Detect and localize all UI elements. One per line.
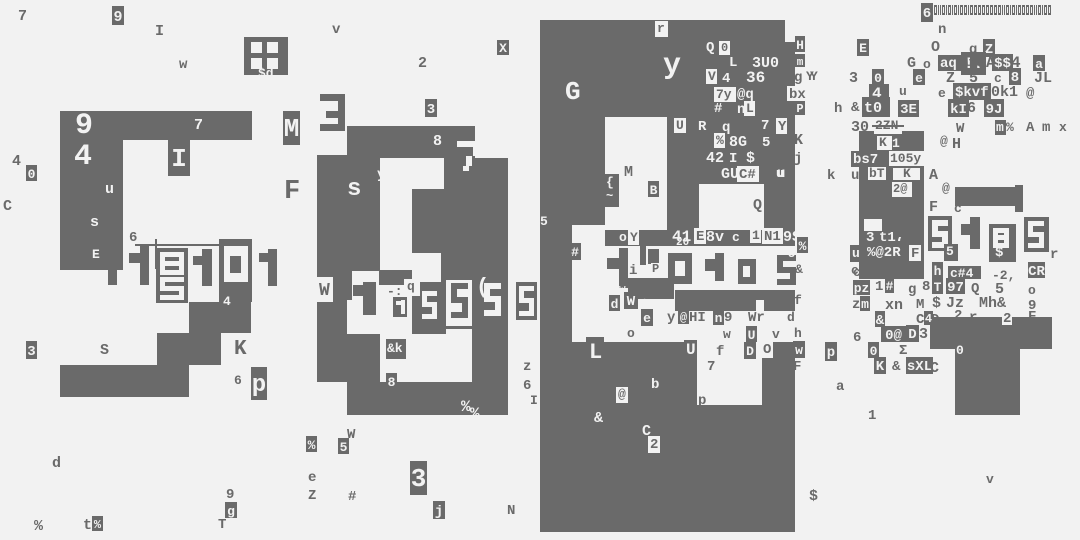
svg-text:$: $ xyxy=(995,245,1003,261)
svg-text:c: c xyxy=(853,265,861,280)
svg-text:w: w xyxy=(723,327,731,342)
svg-text:E: E xyxy=(696,229,704,245)
svg-text:4: 4 xyxy=(223,294,231,309)
svg-text:&: & xyxy=(892,359,901,375)
svg-text:%: % xyxy=(308,438,316,453)
svg-text:F: F xyxy=(1028,309,1036,325)
svg-text:&: & xyxy=(851,100,860,116)
svg-text:#: # xyxy=(714,101,722,117)
svg-text:A: A xyxy=(929,167,938,184)
svg-text:z: z xyxy=(523,359,531,375)
svg-text:y: y xyxy=(377,167,386,183)
svg-text:C: C xyxy=(930,360,939,377)
svg-text:g: g xyxy=(227,504,235,519)
svg-text:6: 6 xyxy=(923,6,931,22)
svg-text:@: @ xyxy=(1026,86,1035,102)
svg-text:M: M xyxy=(284,114,300,144)
svg-text:pz: pz xyxy=(854,281,870,296)
svg-text:0: 0 xyxy=(721,41,728,55)
svg-text:CR: CR xyxy=(1028,264,1045,280)
svg-text:8: 8 xyxy=(388,375,396,390)
svg-text:p: p xyxy=(827,345,835,361)
svg-text:I: I xyxy=(171,144,187,174)
svg-text:3: 3 xyxy=(919,326,928,343)
svg-text:d: d xyxy=(611,297,619,312)
svg-text:41: 41 xyxy=(672,228,691,246)
svg-text:U: U xyxy=(748,328,756,343)
svg-text:#: # xyxy=(571,245,579,260)
svg-text:o: o xyxy=(627,326,635,341)
svg-text:t: t xyxy=(83,517,92,534)
svg-text:&: & xyxy=(594,410,603,427)
svg-text:y: y xyxy=(663,49,681,83)
svg-text:#: # xyxy=(886,279,894,294)
svg-text:I: I xyxy=(155,23,164,40)
svg-text:0k1: 0k1 xyxy=(991,84,1018,101)
svg-text:36: 36 xyxy=(746,69,765,87)
svg-text:3: 3 xyxy=(27,344,35,360)
svg-text:42: 42 xyxy=(706,150,724,167)
svg-text:Y: Y xyxy=(806,69,814,84)
svg-text:1: 1 xyxy=(875,279,883,295)
svg-text:105y: 105y xyxy=(890,151,921,166)
svg-text:8: 8 xyxy=(433,133,442,150)
svg-text:(: ( xyxy=(476,275,489,300)
svg-text:C: C xyxy=(3,198,12,215)
svg-text:o: o xyxy=(1028,283,1036,298)
svg-text:Z: Z xyxy=(308,488,316,504)
svg-text:K: K xyxy=(876,359,885,375)
svg-text:GU: GU xyxy=(721,166,739,183)
svg-text:$: $ xyxy=(809,488,818,505)
svg-text:0: 0 xyxy=(870,344,878,359)
svg-text:%: % xyxy=(34,518,44,535)
svg-text:6: 6 xyxy=(853,330,861,346)
svg-text:~: ~ xyxy=(606,189,613,203)
svg-text:%: % xyxy=(799,239,807,254)
svg-text:6: 6 xyxy=(129,230,137,246)
svg-text:K: K xyxy=(903,166,911,181)
svg-text:8: 8 xyxy=(922,279,930,295)
svg-text:h: h xyxy=(934,264,942,279)
svg-text:E: E xyxy=(859,41,867,56)
svg-text:9J: 9J xyxy=(986,102,1003,118)
svg-text:Q: Q xyxy=(706,40,714,56)
svg-text:s: s xyxy=(347,176,361,203)
svg-text:P: P xyxy=(796,102,803,116)
svg-text:w: w xyxy=(795,343,803,358)
svg-text:W: W xyxy=(319,281,330,301)
svg-text:9: 9 xyxy=(724,310,732,326)
svg-text:30: 30 xyxy=(851,119,869,136)
svg-text:3E: 3E xyxy=(900,102,917,118)
svg-text:r: r xyxy=(969,310,977,326)
svg-text:H: H xyxy=(952,136,961,153)
svg-text:5: 5 xyxy=(540,214,548,229)
svg-text:3: 3 xyxy=(849,70,858,87)
svg-text:7: 7 xyxy=(18,8,27,25)
svg-text:W: W xyxy=(956,121,965,137)
svg-text:9: 9 xyxy=(75,109,93,143)
svg-text:t0: t0 xyxy=(864,100,882,117)
svg-text:9: 9 xyxy=(226,487,234,503)
svg-text:y: y xyxy=(667,310,676,326)
svg-text:i: i xyxy=(629,263,637,279)
svg-text:Y: Y xyxy=(778,119,787,135)
svg-text:u: u xyxy=(776,166,784,181)
svg-text:r: r xyxy=(657,21,665,36)
svg-text:e: e xyxy=(308,470,316,486)
svg-text:p: p xyxy=(252,372,266,399)
svg-text:#: # xyxy=(348,489,356,505)
svg-text:f: f xyxy=(716,344,724,360)
svg-text:p: p xyxy=(698,393,706,409)
svg-text:u: u xyxy=(105,181,114,198)
svg-text:$$: $$ xyxy=(994,56,1011,72)
svg-text:R: R xyxy=(698,119,707,135)
svg-text:bs7: bs7 xyxy=(853,152,878,168)
svg-text:a: a xyxy=(836,379,845,395)
svg-text:6: 6 xyxy=(523,378,531,394)
svg-text:d: d xyxy=(52,455,61,472)
svg-text:7: 7 xyxy=(761,118,769,134)
svg-text:T: T xyxy=(218,517,226,533)
svg-text:2@: 2@ xyxy=(893,182,907,196)
svg-text:S: S xyxy=(100,342,109,359)
svg-text:5: 5 xyxy=(946,244,954,259)
svg-text:u: u xyxy=(852,246,860,261)
svg-text:4: 4 xyxy=(12,153,21,170)
svg-text:%: % xyxy=(470,405,480,423)
svg-text:8G: 8G xyxy=(729,134,747,151)
svg-text:h: h xyxy=(834,101,842,117)
svg-text:e: e xyxy=(915,71,923,86)
svg-text:$: $ xyxy=(746,150,755,167)
svg-text:w: w xyxy=(179,57,188,73)
svg-text:F: F xyxy=(793,359,801,375)
svg-text:@: @ xyxy=(940,134,948,149)
svg-text:K: K xyxy=(879,135,887,150)
svg-text:Mh&: Mh& xyxy=(979,295,1006,312)
svg-text:v: v xyxy=(332,22,341,38)
svg-text:6: 6 xyxy=(234,373,242,388)
svg-text:+: + xyxy=(641,296,648,310)
svg-text:m: m xyxy=(996,120,1004,135)
svg-text:L: L xyxy=(746,101,754,116)
svg-text:2: 2 xyxy=(418,55,427,72)
svg-text:1: 1 xyxy=(892,136,900,151)
svg-text:@: @ xyxy=(680,311,687,325)
svg-text:z: z xyxy=(763,361,771,377)
svg-text:sXL: sXL xyxy=(907,359,932,375)
svg-text:H: H xyxy=(796,38,804,53)
svg-text:HI: HI xyxy=(689,310,706,326)
svg-text:W: W xyxy=(627,294,636,310)
svg-text:Σ: Σ xyxy=(899,343,907,359)
svg-text:r: r xyxy=(1050,247,1058,263)
svg-text:0: 0 xyxy=(956,343,964,358)
svg-text:B: B xyxy=(650,183,658,198)
svg-text:h: h xyxy=(794,326,802,341)
svg-text:b: b xyxy=(651,377,659,393)
svg-text:f: f xyxy=(794,293,802,308)
svg-text:F: F xyxy=(911,246,919,262)
svg-text:K: K xyxy=(794,132,803,149)
svg-text:s: s xyxy=(90,214,99,231)
svg-text:7y: 7y xyxy=(716,87,732,102)
svg-text:&: & xyxy=(795,262,803,277)
svg-text:C#: C# xyxy=(739,167,756,183)
svg-text:1: 1 xyxy=(752,228,760,243)
svg-text:97: 97 xyxy=(947,280,964,296)
svg-text:Wr: Wr xyxy=(748,310,765,326)
svg-text:{: { xyxy=(606,175,614,190)
svg-text:F: F xyxy=(929,199,938,216)
svg-text:H: H xyxy=(722,409,731,426)
svg-text:3: 3 xyxy=(866,230,874,246)
svg-text:-:: -: xyxy=(387,284,403,299)
svg-text:N: N xyxy=(507,503,515,519)
svg-text:5: 5 xyxy=(788,247,795,261)
svg-text:A: A xyxy=(1026,120,1035,136)
svg-text:0: 0 xyxy=(28,167,36,182)
svg-text:F: F xyxy=(284,177,300,207)
svg-text:n: n xyxy=(938,22,946,38)
svg-text:M: M xyxy=(916,297,924,313)
svg-text:v: v xyxy=(772,327,780,342)
svg-text:9: 9 xyxy=(114,9,123,26)
svg-text:%: % xyxy=(1006,120,1014,135)
svg-text:JL: JL xyxy=(1034,70,1052,87)
svg-text:c: c xyxy=(954,201,962,216)
svg-text:2: 2 xyxy=(1003,311,1011,327)
svg-text:1: 1 xyxy=(868,408,876,424)
svg-text:u: u xyxy=(851,168,859,184)
svg-text:O: O xyxy=(763,342,771,358)
svg-text:%@2R: %@2R xyxy=(867,245,901,261)
svg-text:bT: bT xyxy=(869,166,885,181)
svg-text:0: 0 xyxy=(874,71,882,86)
svg-text:m: m xyxy=(861,297,869,312)
svg-text:g: g xyxy=(794,70,802,86)
svg-text:V: V xyxy=(708,69,716,84)
svg-text:D: D xyxy=(746,344,754,359)
svg-text:K: K xyxy=(234,338,247,361)
svg-text:x: x xyxy=(1059,120,1067,135)
svg-text:%: % xyxy=(94,518,102,532)
svg-text:L: L xyxy=(729,55,737,71)
svg-text:bx: bx xyxy=(789,87,806,103)
svg-text:N1: N1 xyxy=(764,229,781,245)
svg-text:xn: xn xyxy=(885,297,903,314)
svg-text:$d: $d xyxy=(258,66,274,81)
svg-text:D: D xyxy=(931,312,939,328)
svg-text:Q: Q xyxy=(753,197,762,214)
svg-text:%: % xyxy=(716,133,724,148)
svg-text:d: d xyxy=(787,310,795,325)
svg-text:G: G xyxy=(565,77,581,107)
svg-text:I: I xyxy=(729,151,737,167)
svg-text:2: 2 xyxy=(650,437,658,453)
svg-text:c: c xyxy=(732,230,740,245)
svg-text:T: T xyxy=(934,280,942,295)
svg-text:3: 3 xyxy=(427,102,435,118)
svg-text:U: U xyxy=(686,341,696,359)
svg-text:q: q xyxy=(407,279,415,294)
svg-text:4: 4 xyxy=(722,71,730,87)
svg-text:u: u xyxy=(899,84,907,99)
svg-text:7: 7 xyxy=(194,117,203,134)
svg-text:D: D xyxy=(908,327,916,343)
svg-text:6: 6 xyxy=(967,100,976,117)
svg-text:U: U xyxy=(676,118,684,133)
svg-text:kI: kI xyxy=(950,102,967,118)
svg-text:o: o xyxy=(619,230,627,245)
svg-text:g: g xyxy=(908,282,916,298)
svg-text:7: 7 xyxy=(707,359,715,375)
svg-text:P: P xyxy=(652,262,659,276)
svg-text:@: @ xyxy=(942,181,950,196)
svg-text:0@: 0@ xyxy=(885,328,902,344)
svg-text:5: 5 xyxy=(762,135,770,151)
svg-text:$kvf: $kvf xyxy=(955,85,989,101)
svg-text:I: I xyxy=(530,393,538,408)
svg-text:e: e xyxy=(643,311,651,326)
svg-text:$: $ xyxy=(932,295,941,312)
svg-text:m: m xyxy=(797,57,804,69)
svg-text:&k: &k xyxy=(387,341,403,356)
svg-text:8v: 8v xyxy=(706,229,724,246)
svg-text:n: n xyxy=(715,311,723,326)
svg-text:R: R xyxy=(717,279,725,293)
svg-text:2: 2 xyxy=(954,308,962,324)
svg-text:3: 3 xyxy=(411,464,427,494)
svg-text:5: 5 xyxy=(340,440,348,455)
svg-text:X: X xyxy=(499,41,507,56)
svg-text:4: 4 xyxy=(74,140,92,174)
svg-text:k: k xyxy=(827,168,835,184)
svg-text:L: L xyxy=(589,340,602,365)
svg-text:j: j xyxy=(435,504,443,520)
svg-text:Y: Y xyxy=(630,230,638,245)
svg-text:d*y: d*y xyxy=(737,246,757,258)
svg-text:O: O xyxy=(931,39,940,56)
svg-text:@: @ xyxy=(618,387,626,402)
svg-text:e: e xyxy=(938,86,946,101)
svg-text:v: v xyxy=(986,472,994,487)
svg-text:E: E xyxy=(92,247,100,262)
svg-text:m: m xyxy=(1042,120,1050,136)
svg-text:M: M xyxy=(624,164,633,181)
svg-text:z: z xyxy=(852,297,860,313)
svg-text:j: j xyxy=(794,151,802,167)
